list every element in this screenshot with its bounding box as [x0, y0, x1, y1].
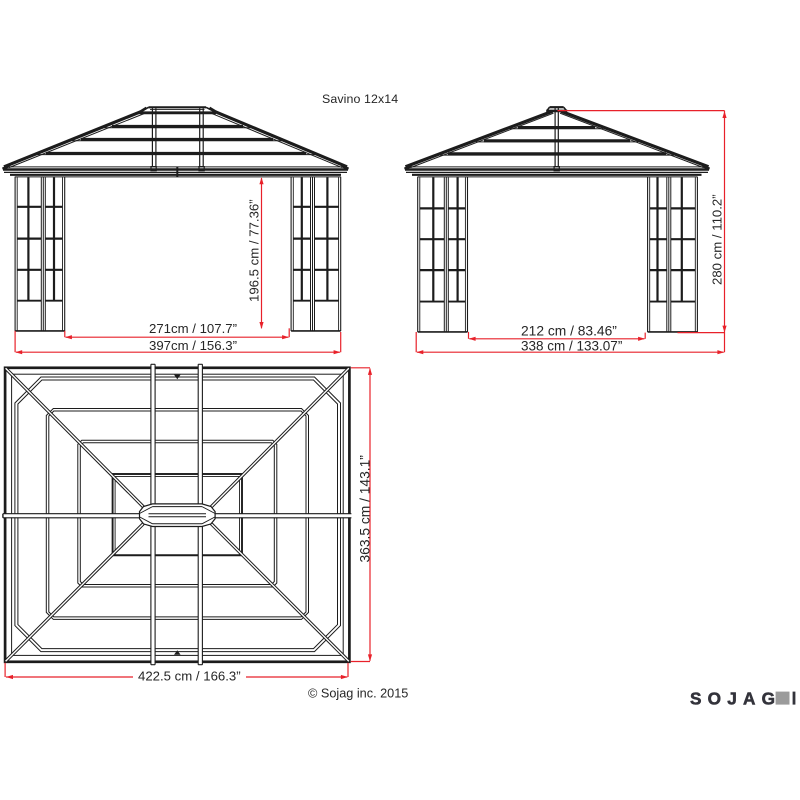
svg-text:338 cm / 133.07”: 338 cm / 133.07” — [521, 339, 622, 354]
svg-text:SOJAG: SOJAG — [690, 689, 781, 709]
svg-text:271cm / 107.7”: 271cm / 107.7” — [149, 321, 237, 336]
svg-text:422.5 cm / 166.3”: 422.5 cm / 166.3” — [138, 668, 241, 683]
svg-text:196.5 cm / 77.36”: 196.5 cm / 77.36” — [247, 199, 262, 302]
svg-text:397cm / 156.3”: 397cm / 156.3” — [149, 338, 237, 353]
svg-text:212 cm / 83.46”: 212 cm / 83.46” — [521, 323, 617, 338]
svg-text:Savino 12x14: Savino 12x14 — [322, 92, 398, 106]
svg-text:363.5 cm / 143.1”: 363.5 cm / 143.1” — [358, 455, 373, 563]
svg-text:© Sojag inc. 2015: © Sojag inc. 2015 — [308, 687, 408, 701]
svg-text:280 cm / 110.2”: 280 cm / 110.2” — [710, 194, 725, 285]
